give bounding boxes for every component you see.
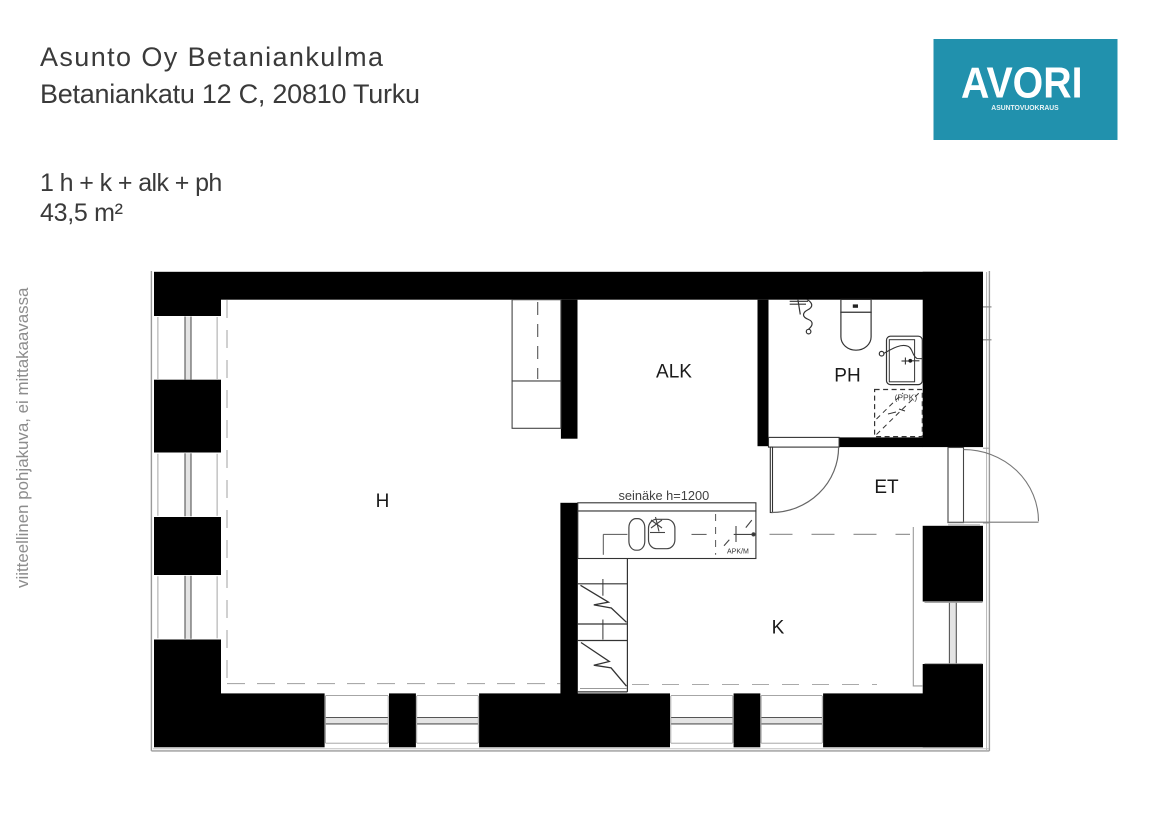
svg-text:(PPK): (PPK) bbox=[895, 393, 918, 403]
svg-text:seinäke h=1200: seinäke h=1200 bbox=[619, 488, 710, 503]
svg-text:PH: PH bbox=[834, 366, 860, 387]
svg-text:APK/M: APK/M bbox=[727, 549, 749, 556]
svg-text:ALK: ALK bbox=[656, 362, 692, 383]
svg-text:ET: ET bbox=[874, 477, 899, 498]
svg-text:K: K bbox=[772, 618, 785, 639]
svg-text:H: H bbox=[376, 491, 390, 512]
